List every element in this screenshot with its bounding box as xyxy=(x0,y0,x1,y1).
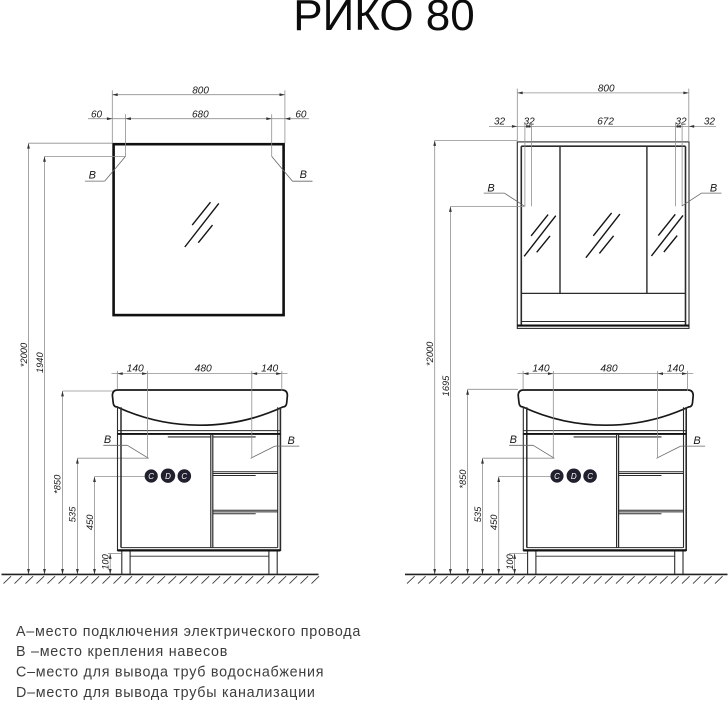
svg-text:B: B xyxy=(693,435,700,447)
svg-text:140: 140 xyxy=(532,363,549,374)
svg-text:100: 100 xyxy=(100,553,110,569)
svg-text:32: 32 xyxy=(494,117,506,128)
svg-text:450: 450 xyxy=(85,514,95,530)
svg-text:C: C xyxy=(587,472,593,481)
svg-text:B: B xyxy=(510,434,517,446)
svg-text:480: 480 xyxy=(600,363,617,374)
svg-text:32: 32 xyxy=(704,117,716,128)
svg-text:60: 60 xyxy=(295,109,307,120)
svg-text:D: D xyxy=(571,472,577,481)
svg-text:800: 800 xyxy=(598,83,615,94)
svg-text:1695: 1695 xyxy=(441,375,451,397)
svg-text:140: 140 xyxy=(261,363,278,374)
svg-text:С–место для вывода труб водосн: С–место для вывода труб водоснабжения xyxy=(16,665,324,681)
svg-text:*850: *850 xyxy=(458,469,468,489)
svg-text:*2000: *2000 xyxy=(425,341,435,366)
svg-text:А–место подключения электричес: А–место подключения электрического прово… xyxy=(16,624,361,640)
svg-text:535: 535 xyxy=(473,506,483,522)
svg-text:450: 450 xyxy=(489,514,499,530)
svg-text:32: 32 xyxy=(524,117,536,128)
svg-text:*850: *850 xyxy=(53,474,63,494)
svg-text:B: B xyxy=(288,435,295,447)
svg-text:B: B xyxy=(104,434,111,446)
svg-text:535: 535 xyxy=(68,506,78,522)
svg-text:60: 60 xyxy=(91,109,103,120)
svg-text:1940: 1940 xyxy=(35,352,45,374)
svg-text:800: 800 xyxy=(192,85,209,96)
svg-text:140: 140 xyxy=(667,363,684,374)
svg-text:100: 100 xyxy=(505,553,515,569)
svg-text:D: D xyxy=(165,472,171,481)
svg-text:C: C xyxy=(181,472,187,481)
svg-text:B: B xyxy=(710,183,717,195)
svg-text:*2000: *2000 xyxy=(19,342,29,367)
svg-text:B: B xyxy=(89,170,96,182)
svg-text:B: B xyxy=(487,183,494,195)
svg-text:В –место крепления навесов: В –место крепления навесов xyxy=(16,644,228,660)
svg-text:C: C xyxy=(148,472,154,481)
svg-text:680: 680 xyxy=(192,109,209,120)
svg-text:D–место для вывода трубы канал: D–место для вывода трубы канализации xyxy=(16,685,316,701)
svg-text:672: 672 xyxy=(597,117,614,128)
svg-text:32: 32 xyxy=(675,117,687,128)
svg-text:C: C xyxy=(554,472,560,481)
svg-text:140: 140 xyxy=(127,363,144,374)
svg-text:РИКО 80: РИКО 80 xyxy=(293,0,475,40)
svg-text:B: B xyxy=(300,169,307,181)
svg-text:480: 480 xyxy=(195,363,212,374)
